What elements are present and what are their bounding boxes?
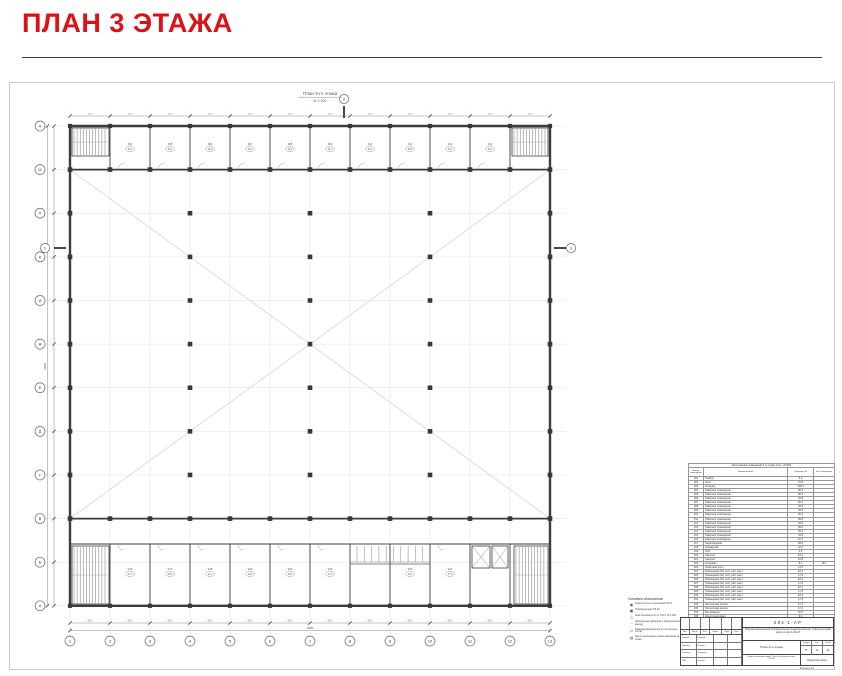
column-marker	[68, 429, 73, 434]
sheet-value: 9	[812, 646, 823, 655]
legend-item: ⇨Эвакуационный выход на лестничную клетк…	[628, 629, 684, 634]
titleblock-main: 284-1-АР Многофункциональный производств…	[743, 618, 833, 665]
column-marker	[188, 124, 192, 128]
column-marker	[508, 167, 513, 172]
axis-letter: А	[39, 604, 42, 608]
bay-dimension: 6000	[367, 621, 373, 623]
column-marker	[308, 124, 312, 128]
sheet-name: План 3-го этажа	[743, 641, 801, 654]
room-area: 36,2	[368, 149, 373, 151]
sign-cell	[714, 635, 728, 642]
column-marker	[108, 167, 113, 172]
room-number: 305	[168, 142, 173, 146]
room-schedule-table: Экспликация помещений 3-го этажа (отм. +…	[688, 463, 835, 643]
titleblock-signatures: Изм.Кол.учЛист№док.Подп.Дата Разраб.Иван…	[681, 618, 743, 665]
column-marker	[308, 167, 313, 172]
column-marker	[188, 473, 193, 478]
evac-exit-icon: ⇨	[628, 629, 635, 634]
column-marker	[308, 516, 313, 521]
room-number: 327	[448, 567, 453, 571]
axis-letter: М	[38, 168, 41, 172]
column-marker	[388, 604, 392, 608]
column-marker	[428, 604, 432, 608]
room-area: 17,6	[448, 574, 453, 576]
legend-item-label: Эвакуационный выход на лестничную клетку	[635, 629, 684, 634]
column-marker	[268, 604, 272, 608]
sign-col-header: Изм.	[681, 630, 690, 634]
title-block: Изм.Кол.учЛист№док.Подп.Дата Разраб.Иван…	[680, 617, 834, 666]
room-area: 36,1	[248, 149, 253, 151]
column-marker	[308, 385, 313, 390]
column-marker	[548, 516, 553, 521]
column-marker	[348, 167, 353, 172]
column-marker	[188, 211, 193, 216]
room-area: 35,8	[408, 149, 413, 151]
column-marker	[548, 255, 553, 260]
room-number: 313	[488, 142, 493, 146]
column-marker	[268, 124, 272, 128]
bay-dimension: 6000	[207, 621, 213, 623]
legend-item: ▣Пожарный кран ПК-15	[628, 609, 684, 614]
room-number: 311	[408, 142, 413, 146]
room-number: 308	[288, 142, 293, 146]
sign-col-header: Подп.	[722, 630, 732, 634]
column-marker	[68, 211, 73, 216]
column-marker	[548, 604, 552, 608]
sign-cell	[728, 635, 742, 642]
column-marker	[68, 255, 73, 260]
room-area: 34,3	[328, 149, 333, 151]
column-marker	[228, 124, 232, 128]
column-marker	[68, 342, 73, 347]
column-marker	[388, 124, 392, 128]
title-rule	[22, 57, 822, 58]
column-marker	[428, 298, 433, 303]
column-marker	[388, 167, 393, 172]
room-number: 320	[248, 567, 253, 571]
bay-dimension: 6000	[328, 113, 334, 115]
titleblock-bottomrow: Офисно-бытовой корпус. План 3-го этажа н…	[743, 655, 833, 665]
column-marker	[308, 604, 312, 608]
column-marker	[188, 516, 193, 521]
column-marker	[468, 167, 473, 172]
section-marks: 112	[40, 94, 575, 252]
column-marker	[68, 385, 73, 390]
column-marker	[548, 124, 552, 128]
bay-dimension: 6000	[87, 621, 93, 623]
column-marker	[188, 342, 193, 347]
room-area: 34,5	[448, 149, 453, 151]
column-marker	[68, 298, 73, 303]
sign-cell: Петров	[697, 643, 715, 650]
axis-letter: Н	[39, 124, 42, 128]
room-area: 36,0	[488, 149, 493, 151]
column-marker	[468, 516, 473, 521]
company-name: Проектное бюро	[801, 655, 833, 665]
sign-cell: Разраб.	[681, 635, 697, 642]
column-marker	[68, 167, 73, 172]
sign-row: Провер.Петров	[681, 643, 742, 651]
column-marker	[308, 298, 313, 303]
room-number: 306	[208, 142, 213, 146]
column-marker	[268, 516, 273, 521]
column-marker	[468, 124, 472, 128]
legend-item: ▤Место размещения плана эвакуации на эта…	[628, 636, 684, 641]
sign-col-header: №док.	[710, 630, 723, 634]
room-area: 36,4	[168, 149, 173, 151]
legend-item: ◉Огнетушитель порошковый ОП-5	[628, 603, 684, 608]
column-marker	[68, 124, 72, 128]
column-marker	[428, 429, 433, 434]
bay-dimension: 6000	[487, 621, 493, 623]
bay-dimension: 6000	[447, 621, 453, 623]
column-marker	[308, 429, 313, 434]
column-marker	[348, 516, 353, 521]
fire-hydrant-icon: ▣	[628, 609, 635, 614]
schedule-col-header: Площадь, м²	[788, 468, 814, 477]
column-marker	[148, 604, 152, 608]
bay-dimension: 6000	[287, 621, 293, 623]
extinguisher-icon: ◉	[628, 603, 635, 608]
evac-plan-icon: ▤	[628, 636, 635, 641]
room-area: 35,6	[288, 149, 293, 151]
column-marker	[308, 211, 313, 216]
legend-item-label: Знак безопасности по ГОСТ 12.4.026	[635, 615, 676, 618]
bay-dimension: 6000	[527, 621, 533, 623]
sign-row: Н.контр.Смирнов	[681, 650, 742, 658]
sign-cell	[714, 650, 728, 657]
schedule-col-header: Номер помещения	[689, 468, 704, 477]
plan-caption: План 3-го этажа	[303, 91, 338, 96]
room-number: 310	[368, 142, 373, 146]
stage-value: П	[801, 646, 812, 655]
column-marker	[428, 342, 433, 347]
column-marker	[548, 211, 553, 216]
schedule-col-header: Кат. помещения	[814, 468, 835, 477]
column-marker	[108, 604, 112, 608]
axis-letter: В	[39, 517, 42, 521]
column-marker	[308, 342, 313, 347]
axis-number: 13	[548, 639, 553, 644]
dimension-lines: 6000600060006000600060006000600060006000…	[43, 113, 552, 632]
column-marker	[308, 473, 313, 478]
axis-letter: И	[39, 299, 42, 303]
room-area: 18,3	[288, 574, 293, 576]
page-title: ПЛАН 3 ЭТАЖА	[22, 8, 233, 39]
page: ПЛАН 3 ЭТАЖА 30435,230536,430634,830736,…	[0, 0, 842, 676]
bay-dimension: 6000	[128, 113, 134, 115]
column-marker	[148, 124, 152, 128]
schedule-col-header: Наименование	[704, 468, 788, 477]
titleblock-midrow: План 3-го этажа Стадия Лист Листов П 9 1…	[743, 641, 833, 655]
bay-dimension: 6000	[528, 113, 534, 115]
sign-col-header: Лист	[701, 630, 710, 634]
column-marker	[188, 298, 193, 303]
sign-cell: Козлов	[697, 658, 715, 665]
legend-item-label: Место размещения плана эвакуации на этаж…	[635, 636, 684, 641]
room-number: 312	[448, 142, 453, 146]
column-marker	[188, 255, 193, 260]
sign-row: Разраб.Иванов	[681, 635, 742, 643]
column-marker	[188, 385, 193, 390]
sign-cell	[714, 643, 728, 650]
bay-dimension: 6000	[88, 113, 94, 115]
format-note: Формат А3	[780, 667, 834, 670]
sign-col-header: Дата	[732, 630, 742, 634]
column-marker	[68, 473, 73, 478]
schedule-header-row: Номер помещенияНаименованиеПлощадь, м²Ка…	[689, 468, 835, 477]
column-marker	[548, 473, 553, 478]
sign-cell: ГИП	[681, 658, 697, 665]
column-marker	[148, 516, 153, 521]
legend-items: ◉Огнетушитель порошковый ОП-5▣Пожарный к…	[628, 603, 684, 642]
bay-dimension: 6000	[448, 113, 454, 115]
stage-values: П 9 13	[801, 646, 833, 655]
room-area: 17,9	[328, 574, 333, 576]
safety-sign-icon: △	[628, 615, 635, 620]
room-number: 317	[168, 567, 173, 571]
bay-dimension: 6000	[488, 113, 494, 115]
column-marker	[548, 429, 553, 434]
wc-and-elevators	[350, 544, 508, 568]
project-name: Многофункциональный производственно-скла…	[743, 628, 833, 641]
sign-col-header: Кол.уч	[690, 630, 701, 634]
sign-cell	[728, 650, 742, 657]
axis-letter: Ж	[38, 343, 42, 347]
legend-item-label: Направление движения к эвакуационному вы…	[635, 621, 684, 626]
object-name: Офисно-бытовой корпус. План 3-го этажа н…	[743, 655, 801, 665]
column-marker	[108, 124, 112, 128]
titleblock-role-rows: Разраб.ИвановПровер.ПетровН.контр.Смирно…	[681, 635, 742, 665]
overall-width-dimension: 72000	[306, 626, 314, 630]
legend-item-label: Огнетушитель порошковый ОП-5	[635, 603, 672, 606]
legend: Условные обозначения: ◉Огнетушитель поро…	[628, 597, 684, 643]
column-marker	[188, 167, 193, 172]
bay-dimension: 6000	[248, 113, 254, 115]
column-marker	[68, 516, 73, 521]
stage-cells: Стадия Лист Листов П 9 13	[801, 641, 833, 654]
column-marker	[548, 298, 553, 303]
grid-lines	[46, 111, 567, 636]
sign-cell: Н.контр.	[681, 650, 697, 657]
column-marker	[108, 516, 113, 521]
column-marker	[188, 604, 192, 608]
document-code: 284-1-АР	[743, 618, 833, 628]
column-marker	[308, 255, 313, 260]
column-marker	[508, 124, 512, 128]
legend-item: △Знак безопасности по ГОСТ 12.4.026	[628, 615, 684, 620]
sign-row: ГИПКозлов	[681, 658, 742, 665]
bay-dimension: 6000	[167, 621, 173, 623]
sign-cell: Провер.	[681, 643, 697, 650]
column-marker	[548, 167, 553, 172]
bay-dimension: 6000	[208, 113, 214, 115]
bay-dimension: 6000	[327, 621, 333, 623]
column-marker	[228, 516, 233, 521]
column-marker	[548, 342, 553, 347]
column-marker	[428, 124, 432, 128]
axis-letter: Г	[39, 473, 41, 477]
column-marker	[268, 167, 273, 172]
floor-plan-drawing: 30435,230536,430634,830736,130835,630934…	[14, 85, 626, 651]
column-marker	[428, 255, 433, 260]
legend-title: Условные обозначения:	[628, 597, 684, 601]
overall-height-dimension: 66000	[43, 362, 47, 370]
axis-letter: Е	[39, 386, 42, 390]
sign-cell	[728, 643, 742, 650]
sign-cell: Смирнов	[697, 650, 715, 657]
column-marker	[428, 167, 433, 172]
bay-dimension: 6000	[408, 113, 414, 115]
plan-scale: М 1:100	[314, 99, 327, 103]
sign-cell	[714, 658, 728, 665]
room-area: 35,2	[128, 149, 133, 151]
room-number: 304	[128, 142, 133, 146]
room-number: 316	[128, 567, 133, 571]
room-number: 324	[288, 567, 293, 571]
column-marker	[428, 516, 433, 521]
drawing-sheet: 30435,230536,430634,830736,130835,630934…	[9, 82, 835, 670]
room-schedule: Экспликация помещений 3-го этажа (отм. +…	[688, 463, 834, 643]
column-marker	[428, 211, 433, 216]
room-area: 34,8	[208, 149, 213, 151]
column-marker	[348, 604, 352, 608]
column-marker	[428, 385, 433, 390]
sheets-value: 13	[823, 646, 833, 655]
stage-label: Стадия	[801, 641, 812, 645]
door-arcs	[118, 164, 484, 550]
column-marker	[228, 167, 233, 172]
column-marker	[228, 604, 232, 608]
room-number: 307	[248, 142, 253, 146]
room-area: 47,2	[128, 574, 133, 576]
titleblock-blank-cells	[681, 618, 742, 630]
bay-dimension: 6000	[127, 621, 133, 623]
evac-route-icon: →	[628, 621, 635, 626]
column-marker	[148, 167, 153, 172]
axis-letter: Д	[39, 430, 42, 434]
column-marker	[348, 124, 352, 128]
room-number: 326	[408, 567, 413, 571]
column-marker	[468, 604, 472, 608]
axis-number: 10	[428, 639, 433, 644]
sheets-label: Листов	[823, 641, 833, 645]
column-marker	[68, 604, 72, 608]
room-area: 12,4	[208, 574, 213, 576]
column-marker	[428, 473, 433, 478]
room-area: 16,2	[248, 574, 253, 576]
room-area: 28,6	[168, 574, 173, 576]
room-area: 18,4	[408, 574, 413, 576]
room-number: 309	[328, 142, 333, 146]
column-marker	[388, 516, 393, 521]
axis-number: 12	[508, 639, 513, 644]
bay-dimension: 6000	[407, 621, 413, 623]
room-number: 325	[328, 567, 333, 571]
column-marker	[508, 516, 513, 521]
sheet-label: Лист	[812, 641, 823, 645]
column-marker	[188, 429, 193, 434]
sign-cell: Иванов	[697, 635, 715, 642]
bay-dimension: 6000	[288, 113, 294, 115]
legend-item: →Направление движения к эвакуационному в…	[628, 621, 684, 626]
bay-dimension: 6000	[247, 621, 253, 623]
bay-dimension: 6000	[368, 113, 374, 115]
legend-item-label: Пожарный кран ПК-15	[635, 609, 660, 612]
room-number: 318	[208, 567, 213, 571]
column-marker	[508, 604, 512, 608]
sign-cell	[728, 658, 742, 665]
column-marker	[548, 385, 553, 390]
grid-axis-bubbles: 12345678910111213НМЛКИЖЕДГВБА	[35, 121, 555, 646]
bay-dimension: 6000	[168, 113, 174, 115]
